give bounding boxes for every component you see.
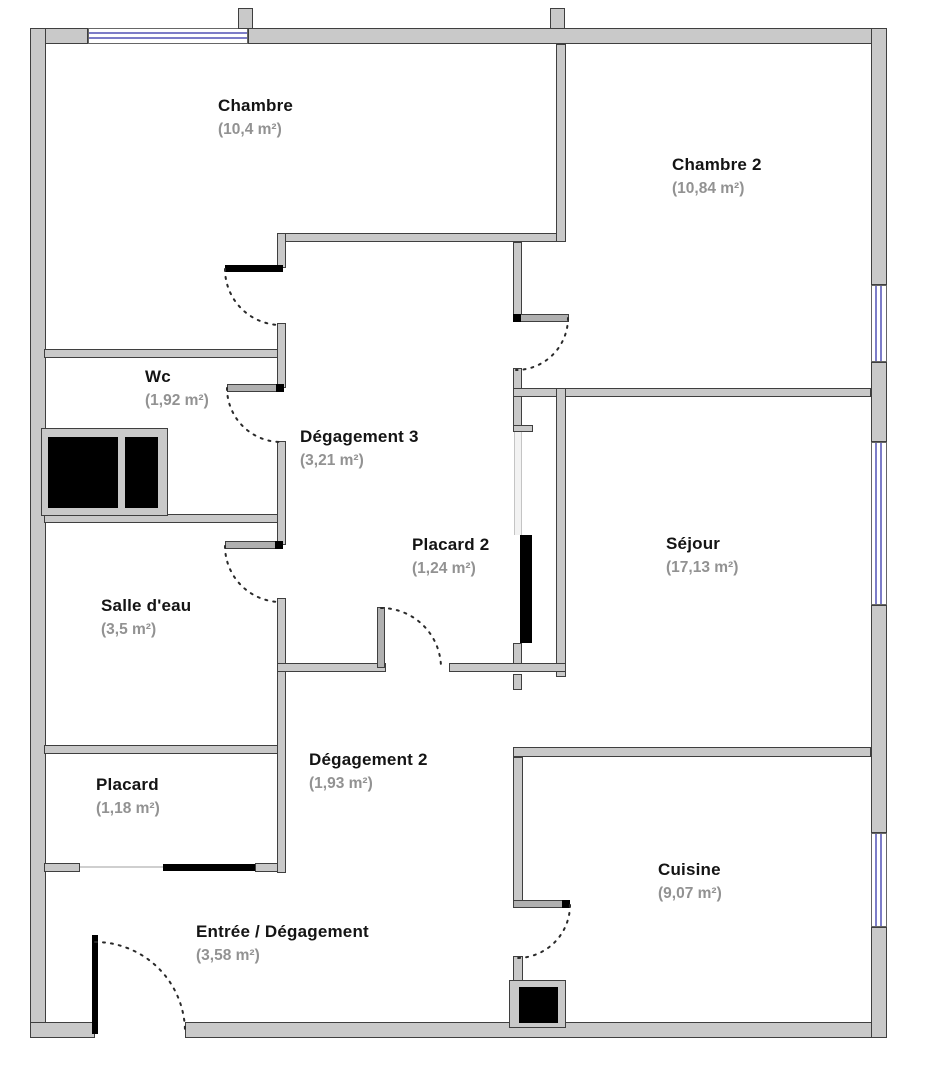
door-hinge-salledeau — [275, 541, 283, 549]
room-name: Chambre 2 — [672, 155, 762, 175]
door-arc-cuisine — [517, 905, 570, 958]
window-cuisine-right — [871, 833, 887, 927]
door-arc-salledeau — [225, 546, 281, 602]
door-leaf-degagement2 — [377, 607, 385, 668]
wall-sejour-left — [556, 388, 566, 677]
placard-opening-sill — [80, 866, 164, 868]
room-label-degagement2: Dégagement 2 (1,93 m²) — [309, 750, 428, 793]
exterior-wall-bottom-segment-left — [30, 1022, 95, 1038]
floor-plan: Chambre (10,4 m²) Chambre 2 (10,84 m²) W… — [0, 0, 949, 1080]
room-name: Placard — [96, 775, 160, 795]
room-label-cuisine: Cuisine (9,07 m²) — [658, 860, 722, 903]
window-glass-lines — [875, 443, 882, 604]
exterior-wall-right-segment-4 — [871, 927, 887, 1038]
wall-spine-right-jog — [513, 425, 533, 432]
room-name: Entrée / Dégagement — [196, 922, 369, 942]
room-label-placard2: Placard 2 (1,24 m²) — [412, 535, 489, 578]
room-name: Cuisine — [658, 860, 722, 880]
wc-fixture-large — [48, 437, 118, 508]
room-area: (3,5 m²) — [101, 621, 191, 639]
room-area: (3,21 m²) — [300, 452, 419, 470]
room-label-placard: Placard (1,18 m²) — [96, 775, 160, 818]
room-area: (9,07 m²) — [658, 885, 722, 903]
wc-fixture-small — [125, 437, 158, 508]
wall-spine-right-seg-3 — [513, 643, 522, 665]
room-label-wc: Wc (1,92 m²) — [145, 367, 209, 410]
room-area: (1,24 m²) — [412, 560, 489, 578]
door-arc-degagement2 — [381, 608, 441, 668]
room-label-sejour: Séjour (17,13 m²) — [666, 534, 738, 577]
room-area: (17,13 m²) — [666, 559, 738, 577]
placard-sliding-door — [163, 864, 260, 871]
party-wall-stub-left — [238, 8, 253, 29]
door-hinge-chambre2 — [513, 314, 521, 322]
door-arc-entree — [95, 942, 185, 1032]
wall-spine-right-seg-1 — [513, 242, 522, 316]
exterior-wall-right-segment-1 — [871, 28, 887, 285]
room-label-chambre2: Chambre 2 (10,84 m²) — [672, 155, 762, 198]
room-name: Wc — [145, 367, 209, 387]
door-hinge-cuisine — [562, 900, 570, 908]
wall-spine-right-seg-2 — [513, 368, 522, 432]
placard2-open-front — [514, 432, 522, 535]
door-leaf-salledeau — [225, 541, 282, 549]
wall-spine-right-stub — [513, 674, 522, 690]
wall-corridor-bottom-left — [277, 663, 386, 672]
party-wall-stub-right — [550, 8, 565, 29]
window-glass-lines — [875, 834, 882, 926]
door-leaf-chambre2 — [513, 314, 569, 322]
room-name: Salle d'eau — [101, 596, 191, 616]
wall-placard-bottom-left — [44, 863, 80, 872]
door-leaf-chambre — [225, 265, 283, 272]
wall-chambre2-sejour — [513, 388, 871, 397]
exterior-wall-right-segment-3 — [871, 605, 887, 833]
room-name: Chambre — [218, 96, 293, 116]
door-arc-chambre — [225, 269, 281, 325]
wall-spine-left-seg-1 — [277, 233, 286, 268]
room-area: (1,18 m²) — [96, 800, 160, 818]
room-area: (1,92 m²) — [145, 392, 209, 410]
window-glass-lines — [89, 32, 247, 39]
room-name: Dégagement 2 — [309, 750, 428, 770]
room-label-chambre: Chambre (10,4 m²) — [218, 96, 293, 139]
wall-cuisine-left-lower — [513, 956, 523, 982]
door-arc-wc — [227, 388, 281, 442]
door-arc-chambre2 — [516, 318, 568, 370]
exterior-wall-left — [30, 28, 46, 1038]
wall-chambre-wc — [44, 349, 284, 358]
wall-spine-left-seg-3 — [277, 441, 286, 545]
window-chambre-top — [88, 28, 248, 44]
wall-spine-left-seg-4 — [277, 598, 286, 873]
room-name: Placard 2 — [412, 535, 489, 555]
placard2-sliding-door — [520, 535, 532, 643]
room-area: (10,4 m²) — [218, 121, 293, 139]
exterior-wall-right-segment-2 — [871, 362, 887, 442]
wall-sejour-cuisine — [513, 747, 871, 757]
window-chambre2-right — [871, 285, 887, 362]
cuisine-fixture — [519, 987, 558, 1023]
room-label-salledeau: Salle d'eau (3,5 m²) — [101, 596, 191, 639]
wall-spine-left-seg-2 — [277, 323, 286, 388]
wall-cuisine-left-upper — [513, 757, 523, 902]
door-hinge-wc — [276, 384, 284, 392]
room-area: (3,58 m²) — [196, 947, 369, 965]
room-name: Dégagement 3 — [300, 427, 419, 447]
window-glass-lines — [875, 286, 882, 361]
wall-chambre-chambre2 — [556, 44, 566, 242]
wall-salledeau-placard — [44, 745, 284, 754]
wall-corridor-bottom-right — [449, 663, 566, 672]
room-label-entree: Entrée / Dégagement (3,58 m²) — [196, 922, 369, 965]
room-label-degagement3: Dégagement 3 (3,21 m²) — [300, 427, 419, 470]
exterior-wall-top-segment-right — [248, 28, 887, 44]
room-area: (10,84 m²) — [672, 180, 762, 198]
room-name: Séjour — [666, 534, 738, 554]
wall-chambre-corridor-top — [277, 233, 566, 242]
room-area: (1,93 m²) — [309, 775, 428, 793]
window-sejour-right — [871, 442, 887, 605]
door-leaf-entree — [92, 935, 98, 1034]
